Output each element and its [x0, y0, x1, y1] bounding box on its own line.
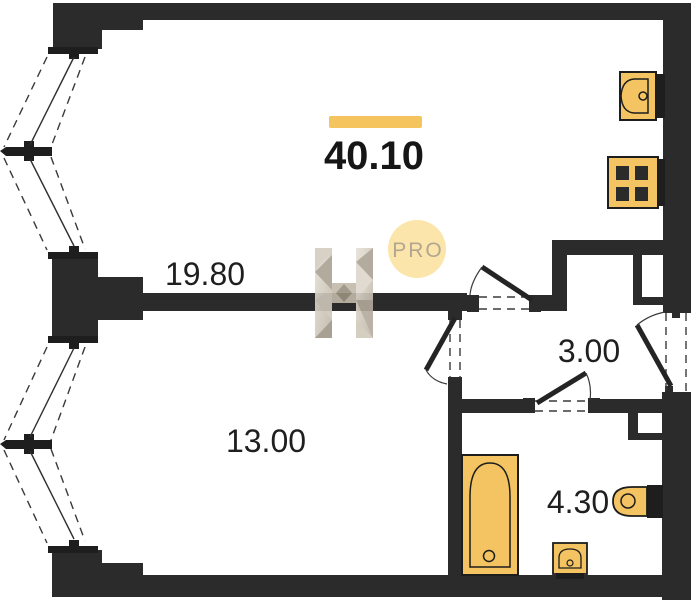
pro-badge: PRO: [388, 220, 446, 278]
door-bedroom: [426, 318, 460, 384]
stove: [608, 157, 665, 208]
bay-window-top: [0, 47, 98, 259]
door-entrance: [637, 312, 686, 392]
door-living-room: [470, 267, 532, 309]
logo-letter-h: [315, 248, 373, 338]
bathtub: [462, 455, 518, 575]
pro-badge-text: PRO: [392, 239, 444, 262]
bathroom-area-label: 4.30: [547, 484, 609, 520]
floor-plan-canvas: PRO 40.10 19.80 13.00 3.00 4.30: [0, 0, 691, 600]
bay-window-bottom: [0, 336, 98, 553]
labels: 40.10 19.80 13.00 3.00 4.30: [165, 116, 620, 520]
washbasin: [553, 543, 587, 579]
hall-area-label: 3.00: [558, 333, 620, 369]
logo-watermark: PRO: [315, 220, 446, 338]
kitchen-sink: [620, 72, 665, 120]
toilet: [613, 485, 663, 518]
total-area-accent-bar: [329, 116, 422, 128]
door-bathroom: [535, 373, 591, 411]
bedroom-area-label: 13.00: [226, 423, 306, 459]
living-room-area-label: 19.80: [165, 256, 245, 292]
floor-plan: PRO 40.10 19.80 13.00 3.00 4.30: [0, 0, 691, 600]
total-area-label: 40.10: [324, 134, 424, 178]
